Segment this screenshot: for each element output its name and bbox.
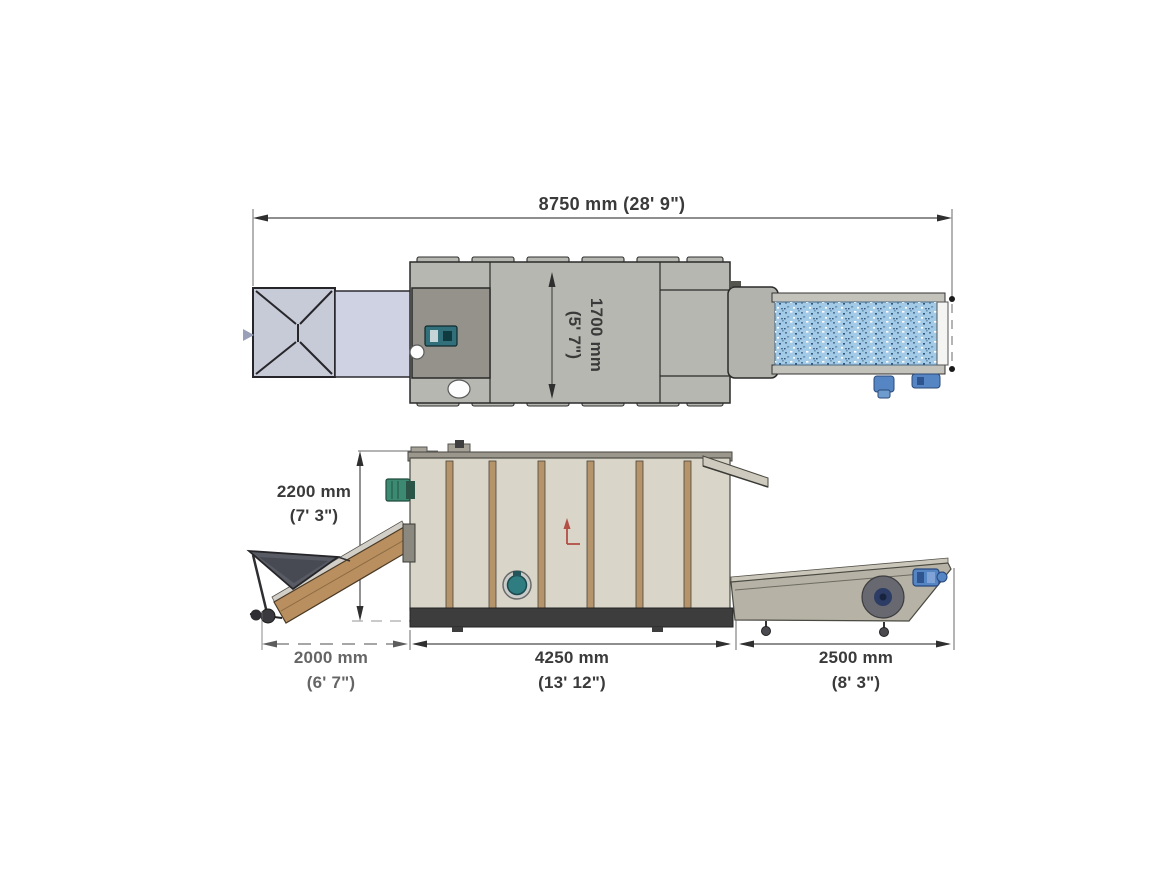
height-label-ft: (7' 3") [290, 506, 338, 525]
panel-seam [446, 461, 453, 610]
arrowhead-right-icon [936, 641, 951, 648]
incline-infeed-assembly [249, 521, 412, 623]
side-view: 2200 mm (7' 3") [249, 440, 954, 692]
width-label-mm: 1700 mm [587, 298, 606, 372]
machine-body-side [386, 440, 768, 632]
wheel-foot [878, 390, 890, 398]
arrowhead-right-icon [716, 641, 731, 648]
infeed-entry-plate [403, 524, 415, 562]
conveyor-rail-bottom [772, 365, 945, 374]
arrowhead-left-icon [739, 641, 754, 648]
inspection-hole [448, 380, 470, 398]
drive-motor-side [386, 479, 415, 501]
conveyor-caster-left [762, 621, 771, 636]
discharge-conveyor-side [731, 558, 951, 637]
hinge-detail [729, 281, 741, 287]
wheel [261, 609, 275, 623]
body-wall [410, 458, 730, 610]
motor-detail [443, 331, 452, 341]
conveyor-caster-right [880, 622, 889, 637]
infeed-length-label-ft: (6' 7") [307, 673, 355, 692]
port-latch [513, 571, 521, 576]
width-label-ft: (5' 7") [565, 311, 584, 359]
base-foot [652, 627, 663, 632]
drum-axle [880, 594, 887, 601]
arrowhead-down-icon [357, 606, 364, 621]
infeed-length-dimension: 2000 mm (6' 7") [262, 611, 408, 692]
motor-detail [917, 572, 924, 583]
discharge-motor [913, 569, 947, 586]
motor-cap [406, 481, 415, 499]
conveyor-belt-texture [775, 302, 937, 365]
discharge-conveyor-plan [728, 287, 948, 398]
panel-seam [538, 461, 545, 610]
motor-detail [927, 572, 935, 583]
port-center [508, 576, 527, 595]
top-view: 8750 mm (28' 9") [243, 194, 955, 406]
access-port [503, 571, 531, 599]
conveyor-rail-top [772, 293, 945, 302]
base-foot [452, 627, 463, 632]
wheel-body [912, 374, 940, 388]
arrowhead-up-icon [357, 451, 364, 466]
technical-drawing-canvas: 8750 mm (28' 9") [0, 0, 1168, 880]
caster-wheel [762, 627, 771, 636]
arrowhead-right-icon [937, 215, 952, 222]
machine-dimension-drawing: 8750 mm (28' 9") [0, 0, 1168, 880]
panel-seam [636, 461, 643, 610]
arrowhead-left-icon [412, 641, 427, 648]
arrowhead-right-icon [393, 641, 408, 648]
panel-seam [489, 461, 496, 610]
drum-pulley [862, 576, 904, 618]
body-length-label-mm: 4250 mm [535, 648, 609, 667]
infeed-length-label-mm: 2000 mm [294, 648, 368, 667]
body-length-dimension: 4250 mm (13' 12") [410, 630, 731, 692]
inspection-hole [410, 345, 424, 359]
body-length-label-ft: (13' 12") [538, 673, 606, 692]
conveyor-head-block [728, 287, 778, 378]
extension-dot-bottom [949, 366, 955, 372]
conveyor-wheel-right [912, 374, 940, 388]
arrowhead-left-icon [262, 641, 277, 648]
motor-detail [430, 330, 438, 342]
panel-seam [587, 461, 594, 610]
infeed-conveyor-plan [335, 291, 412, 377]
panel-seam [684, 461, 691, 610]
drive-motor-plan [425, 326, 457, 346]
roof-bracket-cap [455, 440, 464, 448]
motor-body [425, 326, 457, 346]
overall-length-label: 8750 mm (28' 9") [539, 194, 686, 214]
motor-body [913, 569, 939, 586]
incline-tail-wheel [250, 609, 282, 623]
conveyor-wheel-left [874, 376, 894, 398]
feed-hopper-plan [243, 288, 335, 377]
base-rail [410, 608, 733, 627]
extension-dot-top [949, 296, 955, 302]
arrowhead-left-icon [253, 215, 268, 222]
discharge-length-label-ft: (8' 3") [832, 673, 880, 692]
wheel-disc [251, 610, 262, 621]
wheel-detail [917, 377, 924, 385]
caster-wheel [880, 628, 889, 637]
motor-shaft [937, 572, 947, 582]
discharge-length-label-mm: 2500 mm [819, 648, 893, 667]
height-label-mm: 2200 mm [277, 482, 351, 501]
belt-end-pulley [937, 302, 948, 365]
